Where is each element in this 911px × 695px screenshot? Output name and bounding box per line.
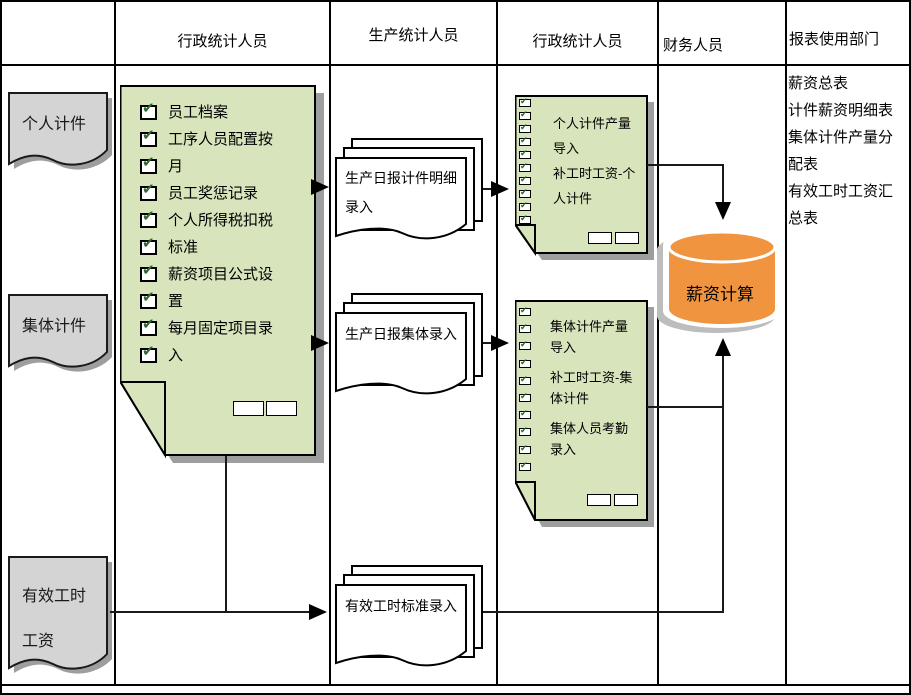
doc-valid-hours-pay-label: 有效工时工资 — [22, 574, 94, 664]
report-item: 计件薪资明细表 — [788, 97, 900, 124]
docstack-label: 生产日报集体录入 — [345, 320, 463, 349]
lane-header-admin-stat-1: 行政统计人员 — [116, 30, 329, 51]
swimlane-diagram: 行政统计人员 生产统计人员 行政统计人员 财务人员 报表使用部门 个人计件 集体… — [0, 0, 911, 695]
checkbox-icon — [140, 105, 157, 120]
note-item: 集体计件产量导入 — [550, 316, 638, 358]
grid-header-line — [0, 64, 911, 66]
checkbox-icon — [519, 308, 531, 316]
grid-footer-line — [0, 684, 911, 686]
doc-valid-hours-pay[interactable]: 有效工时工资 — [8, 556, 120, 682]
note-item: 个人所得税扣税标准 — [168, 207, 280, 261]
checkbox-icon — [519, 164, 531, 172]
grid-border-top — [0, 0, 911, 2]
note-item: 员工奖惩记录 — [168, 180, 280, 207]
lane-header-report-users: 报表使用部门 — [789, 28, 879, 49]
note-admin-master-data[interactable]: 员工档案 工序人员配置按月 员工奖惩记录 个人所得税扣税标准 薪资项目公式设置 … — [120, 85, 330, 469]
lane-header-admin-stat-2: 行政统计人员 — [498, 30, 657, 51]
checkbox-icon — [140, 294, 157, 309]
docstack-daily-piecework-entry[interactable]: 生产日报计件明细录入 — [335, 138, 485, 250]
grid-col-line-5 — [785, 0, 787, 686]
note-personal-piecework-import[interactable]: 个人计件产量导入 补工时工资-个人计件 — [515, 95, 660, 265]
checkbox-icon — [140, 159, 157, 174]
checkbox-icon — [519, 99, 531, 107]
docstack-label: 有效工时标准录入 — [345, 592, 463, 621]
checkbox-icon — [519, 446, 531, 454]
checkbox-icon — [519, 428, 531, 436]
reports-list: 薪资总表 计件薪资明细表 集体计件产量分配表 有效工时工资汇总表 — [788, 70, 900, 232]
report-item: 有效工时工资汇总表 — [788, 178, 900, 232]
checkbox-icon — [140, 240, 157, 255]
report-item: 薪资总表 — [788, 70, 900, 97]
note-fold-corner — [516, 482, 536, 520]
checkbox-icon — [519, 177, 531, 185]
doc-personal-piecework-label: 个人计件 — [22, 110, 102, 134]
lane-header-production-stat: 生产统计人员 — [331, 24, 496, 45]
checkbox-icon — [140, 348, 157, 363]
checkbox-icon — [519, 377, 531, 385]
note-button-placeholder — [233, 401, 264, 416]
note-item: 工序人员配置按月 — [168, 126, 280, 180]
checkbox-icon — [140, 267, 157, 282]
doc-group-piecework[interactable]: 集体计件 — [8, 294, 120, 382]
note-item: 补工时工资-个人计件 — [553, 161, 637, 211]
note-item: 薪资项目公式设置 — [168, 261, 280, 315]
note-button-placeholder — [615, 232, 639, 244]
checkbox-icon — [519, 411, 531, 419]
docstack-daily-group-entry[interactable]: 生产日报集体录入 — [335, 293, 485, 405]
checkbox-icon — [519, 216, 531, 224]
grid-col-line-3 — [496, 0, 498, 686]
checkbox-icon — [519, 190, 531, 198]
note-button-placeholder — [587, 494, 611, 506]
checkbox-icon — [519, 125, 531, 133]
checkbox-icon — [519, 203, 531, 211]
lane-header-finance: 财务人员 — [663, 34, 723, 55]
note-item: 员工档案 — [168, 99, 280, 126]
checkbox-icon — [140, 132, 157, 147]
database-label: 薪资计算 — [660, 280, 780, 305]
note-button-placeholder — [588, 232, 612, 244]
docstack-label: 生产日报计件明细录入 — [345, 164, 463, 222]
note-button-placeholder — [614, 494, 638, 506]
checkbox-icon — [519, 151, 531, 159]
note-item: 每月固定项目录入 — [168, 315, 280, 369]
doc-group-piecework-label: 集体计件 — [22, 312, 102, 336]
checkbox-icon — [519, 112, 531, 120]
note-item: 集体人员考勤录入 — [550, 418, 638, 460]
checkbox-icon — [519, 360, 531, 368]
docstack-valid-hours-standard-entry[interactable]: 有效工时标准录入 — [335, 565, 485, 677]
report-item: 集体计件产量分配表 — [788, 124, 900, 178]
checkbox-icon — [140, 186, 157, 201]
cylinder-top — [669, 232, 775, 262]
note-group-piecework-import[interactable]: 集体计件产量导入 补工时工资-集体计件 集体人员考勤录入 — [515, 300, 660, 532]
note-item: 补工时工资-集体计件 — [550, 367, 638, 409]
checkbox-icon — [519, 463, 531, 471]
checkbox-icon — [519, 342, 531, 350]
note-button-placeholder — [266, 401, 297, 416]
note-fold-corner — [516, 225, 536, 253]
checkbox-icon — [519, 138, 531, 146]
note-fold-corner — [121, 382, 166, 455]
checkbox-icon — [519, 394, 531, 402]
note-item: 个人计件产量导入 — [553, 111, 637, 161]
checkbox-icon — [519, 325, 531, 333]
checkbox-icon — [140, 321, 157, 336]
doc-personal-piecework[interactable]: 个人计件 — [8, 92, 120, 180]
grid-border-left — [0, 0, 2, 695]
checkbox-icon — [140, 213, 157, 228]
